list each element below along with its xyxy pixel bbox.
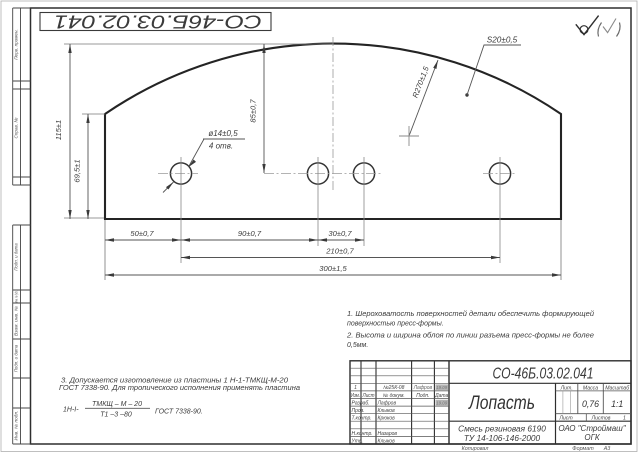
svg-text:S20±0,5: S20±0,5	[487, 36, 518, 45]
svg-text:Клыков: Клыков	[378, 408, 396, 414]
svg-text:ø14±0,5: ø14±0,5	[208, 129, 238, 138]
svg-text:ТУ 14-106-146-2000: ТУ 14-106-146-2000	[464, 433, 541, 443]
svg-text:Н.контр.: Н.контр.	[352, 431, 373, 437]
svg-text:Лафров: Лафров	[377, 400, 397, 406]
svg-text:0,76: 0,76	[582, 399, 599, 409]
svg-text:19.09: 19.09	[436, 385, 448, 390]
svg-text:Назаров: Назаров	[378, 431, 398, 437]
svg-text:Утв.: Утв.	[352, 438, 363, 444]
svg-text:Подп. и дата: Подп. и дата	[13, 243, 18, 271]
svg-text:Лист: Лист	[558, 416, 573, 422]
svg-text:Инв. № подл.: Инв. № подл.	[13, 411, 18, 441]
svg-text:Т.контр.: Т.контр.	[352, 416, 372, 422]
svg-text:Листов: Листов	[591, 416, 611, 422]
svg-text:1: 1	[623, 416, 626, 422]
svg-text:ОГК: ОГК	[584, 433, 601, 442]
svg-text:Подп.: Подп.	[416, 393, 429, 399]
svg-text:Лист: Лист	[362, 393, 375, 399]
svg-text:300±1,5: 300±1,5	[319, 264, 347, 273]
svg-text:Инв. № дубл.: Инв. № дубл.	[13, 291, 18, 303]
svg-text:1: 1	[354, 385, 357, 391]
svg-text:Изм.: Изм.	[351, 393, 360, 399]
svg-text:1. Шероховатость поверхностей: 1. Шероховатость поверхностей детали обе…	[347, 310, 594, 318]
svg-text:Перв. примен.: Перв. примен.	[13, 29, 18, 60]
svg-text:0,5мм.: 0,5мм.	[347, 342, 368, 349]
svg-text:Подп. и дата: Подп. и дата	[13, 344, 18, 372]
svg-text:Крюков: Крюков	[378, 416, 396, 422]
svg-text:Дата: Дата	[434, 393, 448, 399]
svg-text:50±0,7: 50±0,7	[130, 229, 154, 238]
svg-text:Лафров: Лафров	[413, 385, 433, 391]
svg-text:Клыков: Клыков	[378, 438, 396, 444]
svg-text:Лит.: Лит.	[560, 385, 573, 391]
svg-text:3. Допускается изготовление из: 3. Допускается изготовление из пластины …	[61, 378, 288, 385]
svg-text:19.09: 19.09	[436, 400, 448, 405]
svg-text:1:1: 1:1	[611, 399, 623, 409]
svg-text:Т1 –3 –80: Т1 –3 –80	[100, 412, 132, 419]
svg-text:СО-46Б.03.02.041: СО-46Б.03.02.041	[493, 366, 594, 383]
svg-text:Масса: Масса	[583, 385, 598, 391]
svg-text:ТМКЩ – М – 20: ТМКЩ – М – 20	[92, 401, 142, 408]
svg-text:№ докум.: № докум.	[383, 393, 405, 399]
svg-text:Масштаб: Масштаб	[605, 385, 630, 391]
svg-text:90±0,7: 90±0,7	[238, 229, 262, 238]
svg-text:Справ. №: Справ. №	[13, 118, 18, 139]
svg-text:Лопасть: Лопасть	[467, 393, 535, 414]
svg-text:4 отв.: 4 отв.	[209, 142, 233, 151]
svg-text:Пров.: Пров.	[352, 408, 365, 414]
svg-text:поверхностью пресс-формы.: поверхностью пресс-формы.	[347, 321, 444, 328]
svg-text:1Н-I-: 1Н-I-	[63, 407, 79, 414]
svg-text:Формат: Формат	[572, 446, 594, 452]
svg-text:2. Высота и ширина облоя по ли: 2. Высота и ширина облоя по линии разъем…	[346, 332, 594, 340]
svg-text:69,5±1: 69,5±1	[73, 159, 82, 182]
svg-text:№25К-08: №25К-08	[383, 385, 404, 391]
svg-text:Смесь резиновая 6190: Смесь резиновая 6190	[458, 424, 546, 434]
svg-text:Взам. инв. №: Взам. инв. №	[13, 305, 18, 336]
svg-text:ГОСТ 7338-90.: ГОСТ 7338-90.	[155, 409, 203, 416]
svg-text:115±1: 115±1	[54, 120, 63, 141]
svg-text:СО-46Б.03.02.041: СО-46Б.03.02.041	[54, 12, 262, 32]
svg-text:85±0,7: 85±0,7	[249, 99, 258, 123]
svg-text:ОАО "Строймаш": ОАО "Строймаш"	[558, 424, 626, 433]
svg-text:Копировал: Копировал	[462, 446, 489, 452]
svg-text:Разраб.: Разраб.	[352, 400, 370, 406]
svg-text:30±0,7: 30±0,7	[328, 229, 352, 238]
svg-text:А3: А3	[603, 446, 611, 452]
svg-text:210±0,7: 210±0,7	[325, 247, 354, 256]
svg-text:ГОСТ 7338-90. Для тропического: ГОСТ 7338-90. Для тропического исполнени…	[59, 385, 300, 392]
